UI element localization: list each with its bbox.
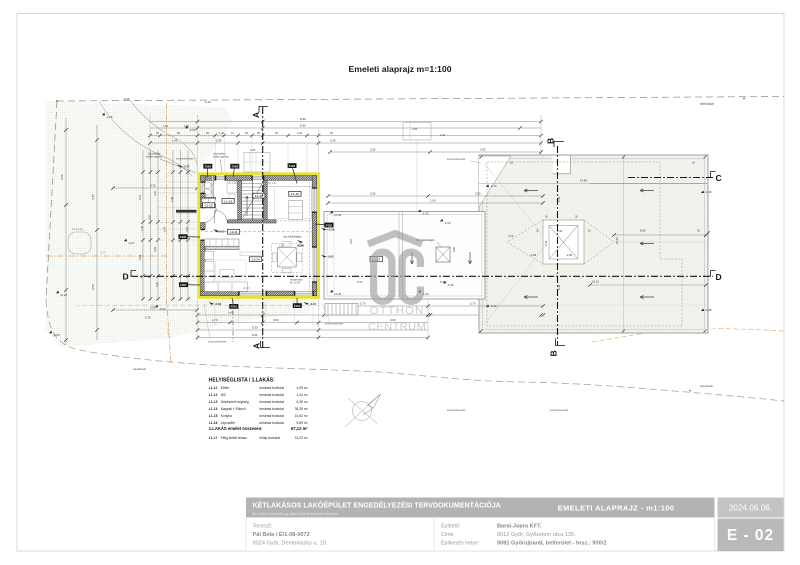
svg-text:2,05: 2,05 bbox=[370, 192, 376, 196]
svg-text:L1-15: L1-15 bbox=[291, 192, 299, 196]
svg-text:-0,77: -0,77 bbox=[183, 165, 190, 169]
svg-text:kerámia burkolat: kerámia burkolat bbox=[260, 393, 284, 397]
svg-text:Acs felülvilágító: Acs felülvilágító bbox=[283, 234, 302, 238]
svg-text:6,60: 6,60 bbox=[60, 174, 64, 180]
svg-text:-0,02: -0,02 bbox=[327, 255, 334, 259]
svg-text:-0,47: -0,47 bbox=[128, 241, 135, 245]
svg-text:kerámia burkolat: kerámia burkolat bbox=[260, 386, 284, 390]
svg-text:F204: F204 bbox=[205, 165, 212, 169]
svg-text:-0,32: -0,32 bbox=[159, 307, 166, 311]
svg-text:14,80: 14,80 bbox=[580, 179, 587, 183]
svg-text:-2,48: -2,48 bbox=[705, 308, 712, 312]
svg-text:Címe:: Címe: bbox=[441, 532, 455, 538]
svg-text:D: D bbox=[716, 272, 722, 282]
svg-text:3,20: 3,20 bbox=[148, 214, 152, 220]
svg-text:10,52 m²: 10,52 m² bbox=[295, 414, 309, 418]
svg-text:Építtető:: Építtető: bbox=[441, 523, 460, 530]
svg-text:5,70: 5,70 bbox=[470, 302, 476, 306]
svg-text:L1-16: L1-16 bbox=[209, 421, 218, 425]
svg-text:E - 02: E - 02 bbox=[727, 527, 774, 544]
svg-text:F206: F206 bbox=[180, 235, 187, 239]
svg-text:WC: WC bbox=[221, 393, 227, 397]
svg-text:5,70: 5,70 bbox=[440, 280, 446, 284]
svg-text:-1,25: -1,25 bbox=[106, 115, 113, 119]
svg-text:2,05: 2,05 bbox=[163, 226, 167, 232]
svg-text:kerámia burkolat: kerámia burkolat bbox=[260, 421, 284, 425]
svg-text:-1,60: -1,60 bbox=[422, 212, 429, 216]
svg-text:L1-11: L1-11 bbox=[209, 386, 218, 390]
svg-text:2,95: 2,95 bbox=[216, 139, 222, 143]
svg-text:B: B bbox=[549, 350, 559, 356]
svg-text:31,02 m²: 31,02 m² bbox=[295, 436, 309, 440]
svg-text:5,70: 5,70 bbox=[360, 302, 366, 306]
svg-text:Előtér: Előtér bbox=[221, 386, 231, 390]
svg-text:Konyha: Konyha bbox=[221, 414, 232, 418]
svg-text:±0,00: ±0,00 bbox=[218, 230, 225, 234]
svg-text:-2,05: -2,05 bbox=[447, 283, 454, 287]
svg-text:C: C bbox=[716, 173, 722, 183]
svg-text:F205: F205 bbox=[232, 165, 239, 169]
svg-text:3,03: 3,03 bbox=[138, 254, 142, 260]
svg-text:D: D bbox=[123, 272, 129, 282]
svg-text:3,03: 3,03 bbox=[185, 226, 189, 232]
svg-text:9,36: 9,36 bbox=[124, 97, 130, 101]
svg-text:pm 90: pm 90 bbox=[243, 288, 250, 290]
svg-text:4,93: 4,93 bbox=[153, 246, 157, 252]
svg-text:8,30: 8,30 bbox=[252, 326, 258, 330]
svg-text:eszvízelvezetés: eszvízelvezetés bbox=[176, 158, 194, 161]
svg-text:9081 Győrújbarát, belterület: 9081 Győrújbarát, belterület - hrsz.: 93… bbox=[497, 541, 606, 547]
svg-text:9012 Győr, Győzelem utca 135.: 9012 Győr, Győzelem utca 135. bbox=[497, 532, 576, 538]
svg-text:3,00: 3,00 bbox=[150, 306, 156, 310]
svg-text:5,00: 5,00 bbox=[100, 251, 106, 255]
svg-text:4,15: 4,15 bbox=[150, 184, 156, 188]
svg-text:-2,80: -2,80 bbox=[215, 302, 222, 306]
svg-text:6,38 m²: 6,38 m² bbox=[297, 400, 309, 404]
svg-text:-2,48: -2,48 bbox=[705, 190, 712, 194]
svg-text:8,30: 8,30 bbox=[300, 124, 306, 128]
svg-text:+0,20: +0,20 bbox=[60, 293, 68, 297]
svg-text:1,40: 1,40 bbox=[140, 225, 144, 231]
svg-text:3,50: 3,50 bbox=[480, 148, 486, 152]
svg-text:L1-12: L1-12 bbox=[209, 393, 218, 397]
svg-text:pm 1,20: pm 1,20 bbox=[228, 183, 237, 185]
svg-text:Ez a terv szerzői jog által vé: Ez a terv szerzői jog által védett szell… bbox=[253, 511, 339, 516]
svg-text:L1-14: L1-14 bbox=[209, 407, 218, 411]
svg-text:kerámia burkolat: kerámia burkolat bbox=[260, 407, 284, 411]
svg-text:2024.06.06.: 2024.06.06. bbox=[729, 504, 772, 513]
svg-text:2,05: 2,05 bbox=[250, 148, 256, 152]
svg-text:eszvízelvezetés: eszvízelvezetés bbox=[325, 322, 344, 326]
svg-text:Af: +2,45: Af: +2,45 bbox=[290, 282, 301, 285]
svg-text:telekhatár: telekhatár bbox=[133, 367, 146, 371]
svg-text:HELYISÉGLISTA / 1.LAKÁS:: HELYISÉGLISTA / 1.LAKÁS: bbox=[209, 376, 275, 384]
svg-text:kerámia burkolat: kerámia burkolat bbox=[260, 414, 284, 418]
svg-text:L1-16: L1-16 bbox=[255, 194, 263, 198]
svg-text:-2,62: -2,62 bbox=[189, 128, 196, 132]
svg-text:3,50: 3,50 bbox=[475, 192, 481, 196]
svg-text:L1-14: L1-14 bbox=[252, 258, 260, 262]
svg-text:eszvízelvezetés: eszvízelvezetés bbox=[447, 408, 466, 412]
svg-text:Emeleti alaprajz m=1:100: Emeleti alaprajz m=1:100 bbox=[348, 64, 451, 74]
svg-text:eszvízelvezetés: eszvízelvezetés bbox=[447, 157, 466, 161]
svg-text:1,50: 1,50 bbox=[163, 124, 169, 128]
svg-text:A: A bbox=[251, 112, 261, 118]
svg-text:1,44 m²: 1,44 m² bbox=[297, 393, 309, 397]
svg-text:5,60: 5,60 bbox=[452, 246, 456, 252]
svg-text:8,60: 8,60 bbox=[640, 229, 646, 233]
svg-text:Építkezés helye:: Építkezés helye: bbox=[441, 540, 479, 547]
svg-text:+0,30: +0,30 bbox=[334, 292, 342, 296]
svg-text:Gépészeti helyiség: Gépészeti helyiség bbox=[221, 400, 249, 404]
svg-text:+0,38: +0,38 bbox=[327, 228, 335, 232]
svg-text:L1-11: L1-11 bbox=[230, 230, 238, 234]
svg-text:Félig fedett terasz: Félig fedett terasz bbox=[221, 436, 248, 440]
svg-text:5,70: 5,70 bbox=[357, 280, 363, 284]
svg-text:1,60: 1,60 bbox=[430, 199, 436, 203]
svg-text:L1-13: L1-13 bbox=[224, 199, 232, 203]
svg-text:3,70: 3,70 bbox=[508, 234, 514, 238]
svg-text:kőlap burkolat: kőlap burkolat bbox=[260, 436, 281, 440]
svg-text:9,10: 9,10 bbox=[349, 238, 353, 244]
svg-text:5,89 m²: 5,89 m² bbox=[297, 421, 309, 425]
svg-text:38,30 m²: 38,30 m² bbox=[295, 407, 309, 411]
svg-text:+0,30: +0,30 bbox=[334, 213, 342, 217]
svg-text:-3,10: -3,10 bbox=[490, 184, 497, 188]
svg-text:L1-15: L1-15 bbox=[209, 414, 218, 418]
svg-text:2,05: 2,05 bbox=[412, 127, 418, 131]
svg-text:1.LAKÁS emelet összesen:: 1.LAKÁS emelet összesen: bbox=[209, 426, 263, 431]
svg-text:KÉTLAKÁSOS LAKÓÉPÜLET ENGEDÉLY: KÉTLAKÁSOS LAKÓÉPÜLET ENGEDÉLYEZÉSI TERV… bbox=[253, 501, 501, 510]
svg-text:8,90: 8,90 bbox=[252, 333, 258, 337]
svg-text:telekhatár: telekhatár bbox=[700, 384, 713, 388]
svg-text:4,80: 4,80 bbox=[166, 328, 171, 334]
svg-text:kerámia burkolat: kerámia burkolat bbox=[260, 400, 284, 404]
svg-text:Pál Béla / É/1-08-0072: Pál Béla / É/1-08-0072 bbox=[253, 530, 310, 538]
svg-text:1,40: 1,40 bbox=[219, 131, 225, 135]
svg-text:Nappali + Étkező: Nappali + Étkező bbox=[221, 406, 246, 411]
svg-text:5,15: 5,15 bbox=[138, 194, 142, 200]
svg-text:L1-13: L1-13 bbox=[209, 400, 218, 404]
svg-text:8,90: 8,90 bbox=[300, 117, 306, 121]
svg-text:3,60: 3,60 bbox=[273, 318, 279, 322]
svg-text:3,43: 3,43 bbox=[297, 131, 303, 135]
svg-text:9,10: 9,10 bbox=[205, 100, 211, 104]
svg-text:5,20: 5,20 bbox=[155, 281, 159, 287]
svg-text:1,20: 1,20 bbox=[279, 245, 284, 248]
svg-text:F210: F210 bbox=[231, 305, 238, 309]
svg-text:F207: F207 bbox=[180, 283, 187, 287]
svg-text:Lépcsőtér: Lépcsőtér bbox=[221, 421, 236, 425]
svg-text:15,00: 15,00 bbox=[615, 237, 619, 244]
svg-text:OTTHON: OTTHON bbox=[370, 305, 425, 317]
svg-text:1,80: 1,80 bbox=[298, 245, 303, 248]
svg-text:4,59 m²: 4,59 m² bbox=[297, 386, 309, 390]
svg-text:-1,90: -1,90 bbox=[444, 221, 451, 225]
svg-text:kavicságy: kavicságy bbox=[72, 227, 84, 231]
svg-text:A: A bbox=[252, 343, 262, 349]
svg-text:2,40: 2,40 bbox=[544, 240, 548, 246]
svg-text:L1-17: L1-17 bbox=[209, 436, 218, 440]
svg-text:4,15: 4,15 bbox=[91, 194, 95, 200]
svg-text:3,20: 3,20 bbox=[153, 190, 157, 196]
svg-text:CENTRUM: CENTRUM bbox=[368, 321, 426, 333]
svg-text:F103: F103 bbox=[289, 164, 296, 168]
svg-text:eszvízelvezetés: eszvízelvezetés bbox=[550, 408, 569, 412]
svg-text:F101: F101 bbox=[294, 304, 301, 308]
svg-text:kültéri egység: kültéri egység bbox=[146, 156, 162, 159]
svg-text:pm 1,20: pm 1,20 bbox=[268, 183, 277, 185]
svg-text:Baral-Jopra KFT.: Baral-Jopra KFT. bbox=[497, 524, 542, 530]
svg-text:6,30: 6,30 bbox=[330, 139, 336, 143]
svg-text:1,40: 1,40 bbox=[440, 133, 446, 137]
svg-text:3,00: 3,00 bbox=[91, 284, 95, 290]
svg-text:2,62: 2,62 bbox=[184, 124, 190, 128]
svg-text:5,35: 5,35 bbox=[145, 316, 151, 320]
svg-text:1,48: 1,48 bbox=[170, 196, 174, 202]
svg-text:9024 Győr, Dembinszky u. 10.: 9024 Győr, Dembinszky u. 10. bbox=[253, 541, 328, 547]
svg-text:1,43: 1,43 bbox=[172, 139, 178, 143]
svg-text:L1-12: L1-12 bbox=[205, 204, 213, 208]
svg-text:2,05: 2,05 bbox=[370, 148, 376, 152]
svg-text:eszvízelvezetés: eszvízelvezetés bbox=[208, 340, 227, 344]
svg-text:67,12 m²: 67,12 m² bbox=[291, 426, 308, 431]
svg-text:-2,68: -2,68 bbox=[566, 253, 573, 257]
svg-text:-2,68: -2,68 bbox=[530, 253, 537, 257]
svg-text:telekhatár: telekhatár bbox=[700, 102, 715, 106]
svg-text:16,10: 16,10 bbox=[592, 280, 599, 284]
svg-text:-0,90: -0,90 bbox=[53, 333, 60, 337]
svg-text:EMELETI ALAPRAJZ - m1:100: EMELETI ALAPRAJZ - m1:100 bbox=[558, 504, 675, 513]
svg-text:Tervező:: Tervező: bbox=[253, 524, 273, 530]
